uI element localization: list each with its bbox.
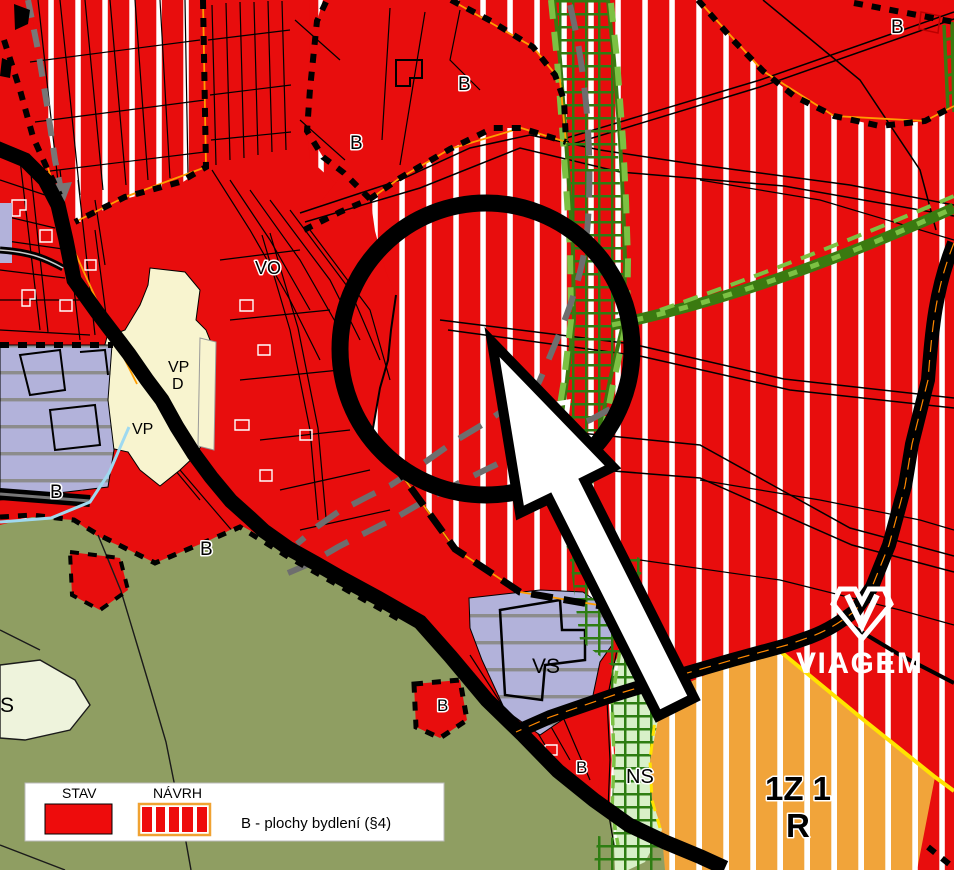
svg-text:1Z 1: 1Z 1	[765, 770, 831, 807]
svg-text:VS: VS	[532, 655, 560, 678]
svg-text:VP: VP	[168, 359, 189, 376]
svg-text:B: B	[50, 482, 63, 503]
svg-text:R: R	[786, 807, 810, 844]
svg-text:B - plochy bydlení (§4): B - plochy bydlení (§4)	[241, 815, 391, 832]
svg-text:VP: VP	[132, 421, 153, 438]
svg-text:B: B	[458, 74, 471, 95]
svg-text:B: B	[437, 696, 448, 715]
svg-text:NS: NS	[626, 766, 654, 788]
svg-text:B: B	[576, 758, 587, 777]
svg-text:S: S	[0, 694, 14, 717]
svg-text:B: B	[200, 539, 213, 560]
svg-text:B: B	[350, 133, 363, 154]
svg-text:NÁVRH: NÁVRH	[153, 785, 202, 801]
svg-text:B: B	[891, 17, 904, 38]
svg-text:VO: VO	[255, 258, 281, 278]
svg-text:D: D	[172, 376, 184, 393]
svg-text:STAV: STAV	[62, 785, 97, 801]
svg-text:VIAGEM: VIAGEM	[796, 647, 923, 680]
